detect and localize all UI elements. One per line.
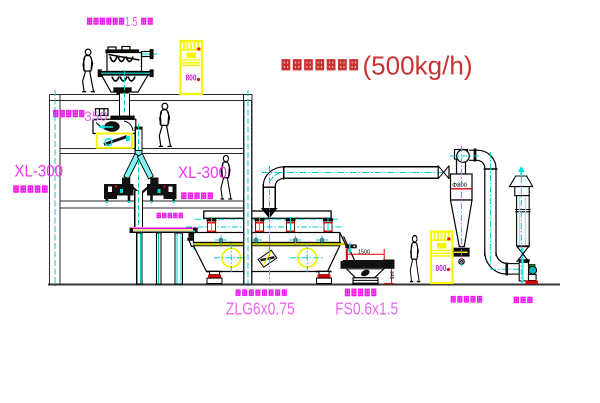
svg-text:1500: 1500	[358, 250, 370, 256]
svg-text:XL-300: XL-300	[178, 164, 227, 182]
svg-text:800: 800	[186, 73, 197, 83]
svg-text:1.5: 1.5	[125, 14, 138, 29]
svg-text:(500kg/h): (500kg/h)	[363, 51, 473, 81]
svg-text:FS0.6x1.5: FS0.6x1.5	[335, 299, 398, 319]
svg-text:ZLG6x0.75: ZLG6x0.75	[226, 299, 295, 319]
svg-text:350: 350	[84, 108, 108, 124]
svg-text:Φ800: Φ800	[452, 183, 467, 189]
svg-text:345: 345	[388, 271, 394, 280]
svg-text:XL-300: XL-300	[15, 163, 64, 181]
svg-text:800: 800	[436, 263, 447, 273]
